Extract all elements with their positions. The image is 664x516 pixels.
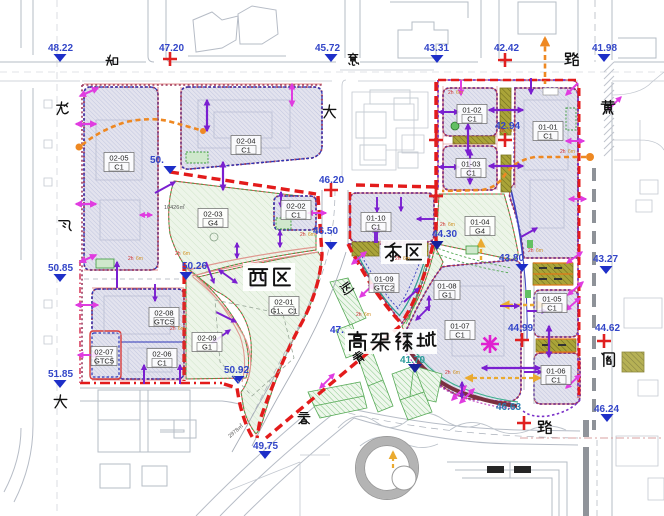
- svg-text:C1: C1: [114, 163, 124, 172]
- svg-text:43.27: 43.27: [593, 254, 618, 265]
- svg-text:01-01: 01-01: [538, 123, 557, 132]
- svg-text:02-08: 02-08: [154, 309, 173, 318]
- svg-text:43.80: 43.80: [499, 253, 524, 264]
- svg-text:2h: 2h: [300, 232, 306, 238]
- svg-text:6m: 6m: [536, 248, 543, 254]
- svg-text:6m: 6m: [178, 326, 185, 332]
- svg-text:C1: C1: [551, 376, 561, 385]
- svg-text:48.22: 48.22: [48, 43, 73, 54]
- svg-text:2h: 2h: [175, 251, 181, 257]
- svg-text:2h: 2h: [356, 312, 362, 318]
- svg-text:01-10: 01-10: [366, 214, 385, 223]
- svg-text:2h: 2h: [499, 128, 505, 134]
- svg-text:44.30: 44.30: [432, 229, 457, 240]
- svg-text:01-03: 01-03: [461, 160, 480, 169]
- svg-text:43.31: 43.31: [424, 43, 449, 54]
- svg-text:6m: 6m: [453, 370, 460, 376]
- svg-text:02-09: 02-09: [197, 334, 216, 343]
- svg-text:2h: 2h: [560, 149, 566, 155]
- svg-text:G1: G1: [202, 343, 212, 352]
- svg-text:02-05: 02-05: [109, 154, 128, 163]
- svg-text:GTC5: GTC5: [94, 357, 114, 366]
- svg-text:47.: 47.: [330, 325, 344, 336]
- svg-text:6m: 6m: [183, 251, 190, 257]
- svg-text:C1: C1: [241, 146, 251, 155]
- svg-text:01-09: 01-09: [374, 275, 393, 284]
- svg-text:G1、C1: G1、C1: [270, 307, 297, 316]
- svg-text:2h: 2h: [395, 256, 401, 262]
- svg-text:01-06: 01-06: [546, 367, 565, 376]
- svg-text:46.50: 46.50: [313, 226, 338, 237]
- svg-text:44.62: 44.62: [595, 323, 620, 334]
- svg-text:2h: 2h: [170, 326, 176, 332]
- svg-text:C1: C1: [467, 115, 477, 124]
- svg-text:51.85: 51.85: [48, 369, 73, 380]
- svg-text:50.85: 50.85: [48, 263, 73, 274]
- svg-text:41.70: 41.70: [400, 355, 425, 366]
- svg-text:C1: C1: [455, 331, 465, 340]
- svg-text:42.42: 42.42: [494, 43, 519, 54]
- svg-text:02-01: 02-01: [274, 298, 293, 307]
- svg-text:6m: 6m: [568, 149, 575, 155]
- svg-text:46.63: 46.63: [496, 402, 521, 413]
- svg-text:6m: 6m: [136, 256, 143, 262]
- svg-text:G1: G1: [442, 291, 452, 300]
- svg-text:02-07: 02-07: [94, 348, 113, 357]
- svg-text:2h: 2h: [128, 256, 134, 262]
- svg-text:47.20: 47.20: [159, 43, 184, 54]
- svg-text:02-03: 02-03: [203, 210, 222, 219]
- svg-text:2h: 2h: [448, 90, 454, 96]
- svg-text:01-02: 01-02: [462, 106, 481, 115]
- svg-text:2h: 2h: [528, 248, 534, 254]
- svg-text:49.75: 49.75: [253, 441, 278, 452]
- svg-text:02-04: 02-04: [236, 137, 255, 146]
- svg-text:C1: C1: [547, 304, 557, 313]
- svg-text:6m: 6m: [507, 128, 514, 134]
- svg-text:C1: C1: [157, 359, 167, 368]
- svg-text:45.72: 45.72: [315, 43, 340, 54]
- svg-text:6m: 6m: [456, 90, 463, 96]
- svg-text:02-06: 02-06: [152, 350, 171, 359]
- svg-text:46.20: 46.20: [319, 175, 344, 186]
- svg-text:2h: 2h: [440, 222, 446, 228]
- svg-text:G4: G4: [475, 227, 485, 236]
- svg-text:01-07: 01-07: [450, 322, 469, 331]
- svg-text:01-04: 01-04: [470, 218, 489, 227]
- svg-text:C1: C1: [371, 223, 381, 232]
- svg-text:02-02: 02-02: [286, 202, 305, 211]
- svg-text:G4: G4: [208, 219, 218, 228]
- svg-text:C1: C1: [543, 132, 553, 141]
- svg-text:44.99: 44.99: [508, 323, 533, 334]
- svg-text:01-08: 01-08: [437, 282, 456, 291]
- svg-text:C1: C1: [466, 169, 476, 178]
- svg-text:6m: 6m: [364, 312, 371, 318]
- svg-text:C1: C1: [291, 211, 301, 220]
- svg-text:41.98: 41.98: [592, 43, 617, 54]
- svg-text:GTC2: GTC2: [374, 284, 394, 293]
- svg-text:10426㎡: 10426㎡: [164, 203, 185, 211]
- svg-text:6m: 6m: [403, 256, 410, 262]
- svg-text:6m: 6m: [308, 232, 315, 238]
- svg-text:6m: 6m: [448, 222, 455, 228]
- svg-text:50.26: 50.26: [182, 261, 207, 272]
- svg-text:50.: 50.: [150, 155, 164, 166]
- svg-text:01-05: 01-05: [542, 295, 561, 304]
- svg-text:2h: 2h: [445, 370, 451, 376]
- svg-text:46.24: 46.24: [594, 404, 619, 415]
